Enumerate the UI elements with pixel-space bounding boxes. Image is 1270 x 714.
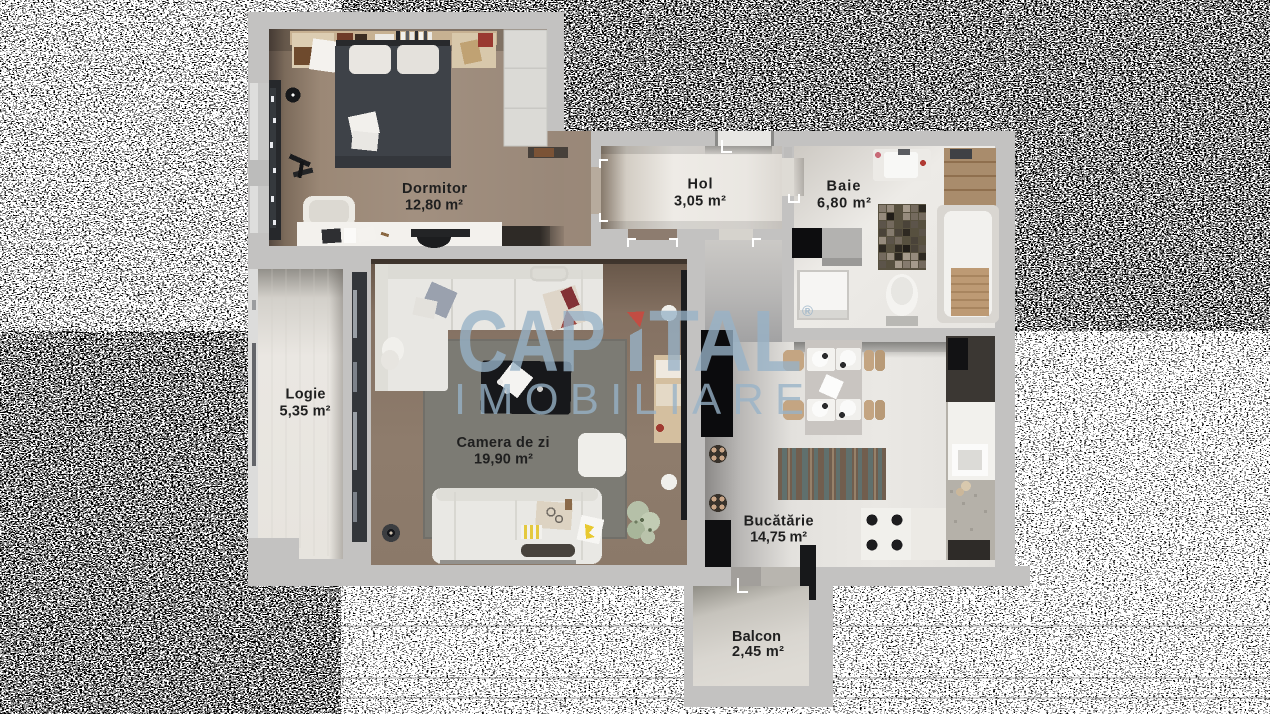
svg-text:Hol: Hol — [688, 177, 713, 193]
svg-text:19,90 m²: 19,90 m² — [474, 452, 533, 468]
svg-text:Bucătărie: Bucătărie — [744, 514, 814, 530]
svg-text:Baie: Baie — [827, 179, 861, 195]
svg-text:Dormitor: Dormitor — [402, 181, 467, 197]
svg-text:®: ® — [802, 303, 813, 320]
svg-text:12,80 m²: 12,80 m² — [405, 198, 463, 214]
svg-text:Logie: Logie — [286, 387, 326, 403]
svg-text:14,75 m²: 14,75 m² — [750, 530, 807, 546]
svg-text:2,45 m²: 2,45 m² — [732, 644, 784, 660]
svg-text:Balcon: Balcon — [732, 629, 781, 645]
svg-text:3,05 m²: 3,05 m² — [674, 194, 726, 210]
svg-text:6,80 m²: 6,80 m² — [817, 196, 871, 212]
svg-text:Camera de zi: Camera de zi — [457, 435, 550, 451]
svg-text:5,35 m²: 5,35 m² — [280, 404, 331, 420]
